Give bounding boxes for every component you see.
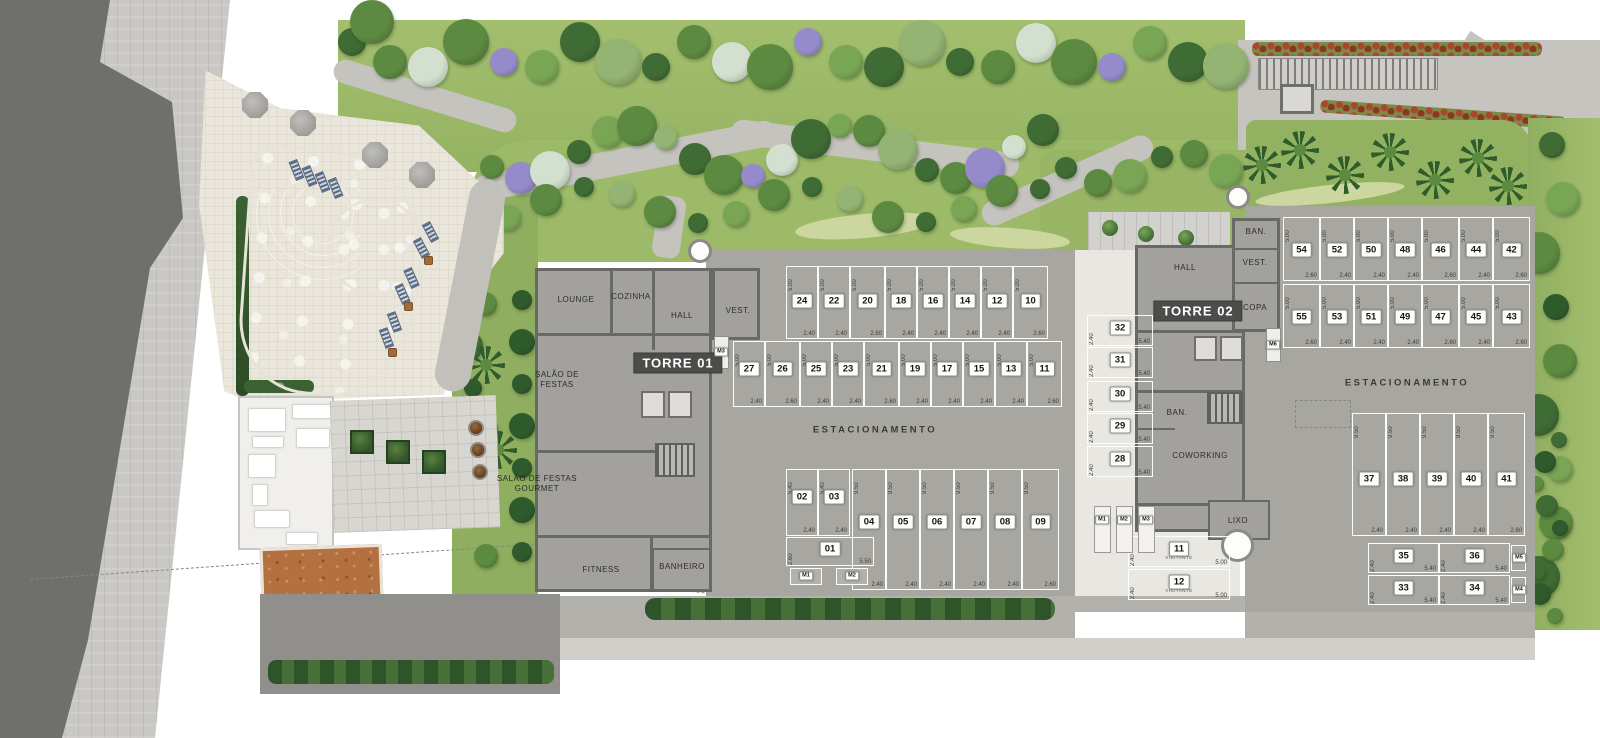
tower1-label: TORRE 01 <box>634 354 721 373</box>
room-label-ban2-t2: BAN. <box>1167 408 1188 418</box>
moto-label-tower1: M3 <box>714 348 728 357</box>
estacionamento-label-right: ESTACIONAMENTO <box>1345 378 1469 389</box>
room-label-hall-t2: HALL <box>1174 263 1196 273</box>
room-label-hall-t1: HALL <box>671 311 693 321</box>
room-label-fitness: FITNESS <box>582 565 619 575</box>
room-label-ban-t2: BAN. <box>1246 227 1267 237</box>
room-label-lixo: LIXO <box>1228 516 1248 526</box>
room-label-copa: COPA <box>1243 303 1267 313</box>
room-label-vest-t2: VEST. <box>1243 258 1268 268</box>
room-label-coworking: COWORKING <box>1172 451 1228 461</box>
tower2-label: TORRE 02 <box>1154 302 1241 321</box>
room-label-lounge: LOUNGE <box>558 295 595 305</box>
room-label-cozinha: COZINHA <box>611 292 651 302</box>
room-label-vest-t1: VEST. <box>726 306 751 316</box>
moto-label-tower2: M6 <box>1266 341 1280 350</box>
site-plan: 5.002.40245.002.40225.002.60205.002.4018… <box>0 0 1600 738</box>
room-label-salao-gourmet: SALÃO DE FESTAS GOURMET <box>482 474 592 494</box>
room-label-salao-festas: SALÃO DE FESTAS <box>522 370 592 390</box>
estacionamento-label-center: ESTACIONAMENTO <box>813 425 937 436</box>
label-layer: LOUNGE COZINHA HALL VEST. SALÃO DE FESTA… <box>0 0 1600 738</box>
room-label-banheiro: BANHEIRO <box>659 562 705 572</box>
